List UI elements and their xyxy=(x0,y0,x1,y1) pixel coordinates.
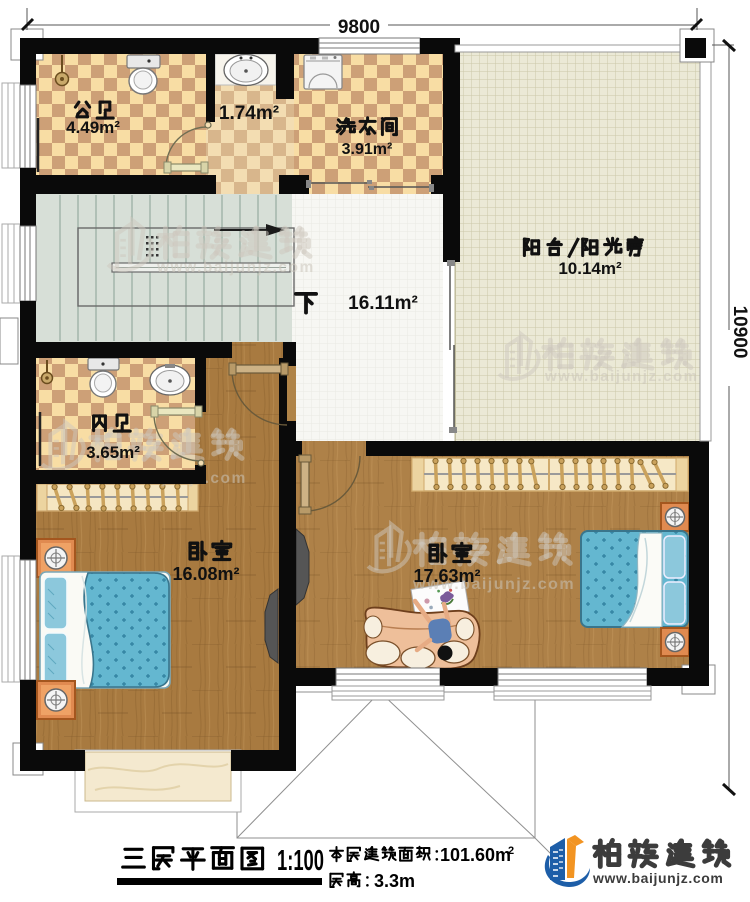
svg-text:4.49m²: 4.49m² xyxy=(66,118,120,137)
svg-text:10.14m²: 10.14m² xyxy=(558,259,622,278)
svg-text:3.65m²: 3.65m² xyxy=(86,443,140,462)
svg-text:16.11m²: 16.11m² xyxy=(348,293,418,314)
svg-text:16.08m²: 16.08m² xyxy=(172,564,239,584)
svg-text:10900: 10900 xyxy=(729,306,750,359)
svg-text:3.3m: 3.3m xyxy=(374,871,415,891)
svg-text:2: 2 xyxy=(508,845,514,857)
svg-text:17.63m²: 17.63m² xyxy=(413,566,480,586)
svg-text:3.91m²: 3.91m² xyxy=(342,141,393,158)
svg-text:9800: 9800 xyxy=(338,17,380,38)
svg-text:1:100: 1:100 xyxy=(277,845,324,877)
svg-text:www.baijunjz.com: www.baijunjz.com xyxy=(544,368,698,385)
svg-text:101.60m: 101.60m xyxy=(440,845,511,865)
svg-text:1.74m²: 1.74m² xyxy=(219,103,279,124)
svg-text:www.baijunjz.com: www.baijunjz.com xyxy=(592,870,723,886)
svg-text:www.baijunjz.com: www.baijunjz.com xyxy=(156,259,315,276)
